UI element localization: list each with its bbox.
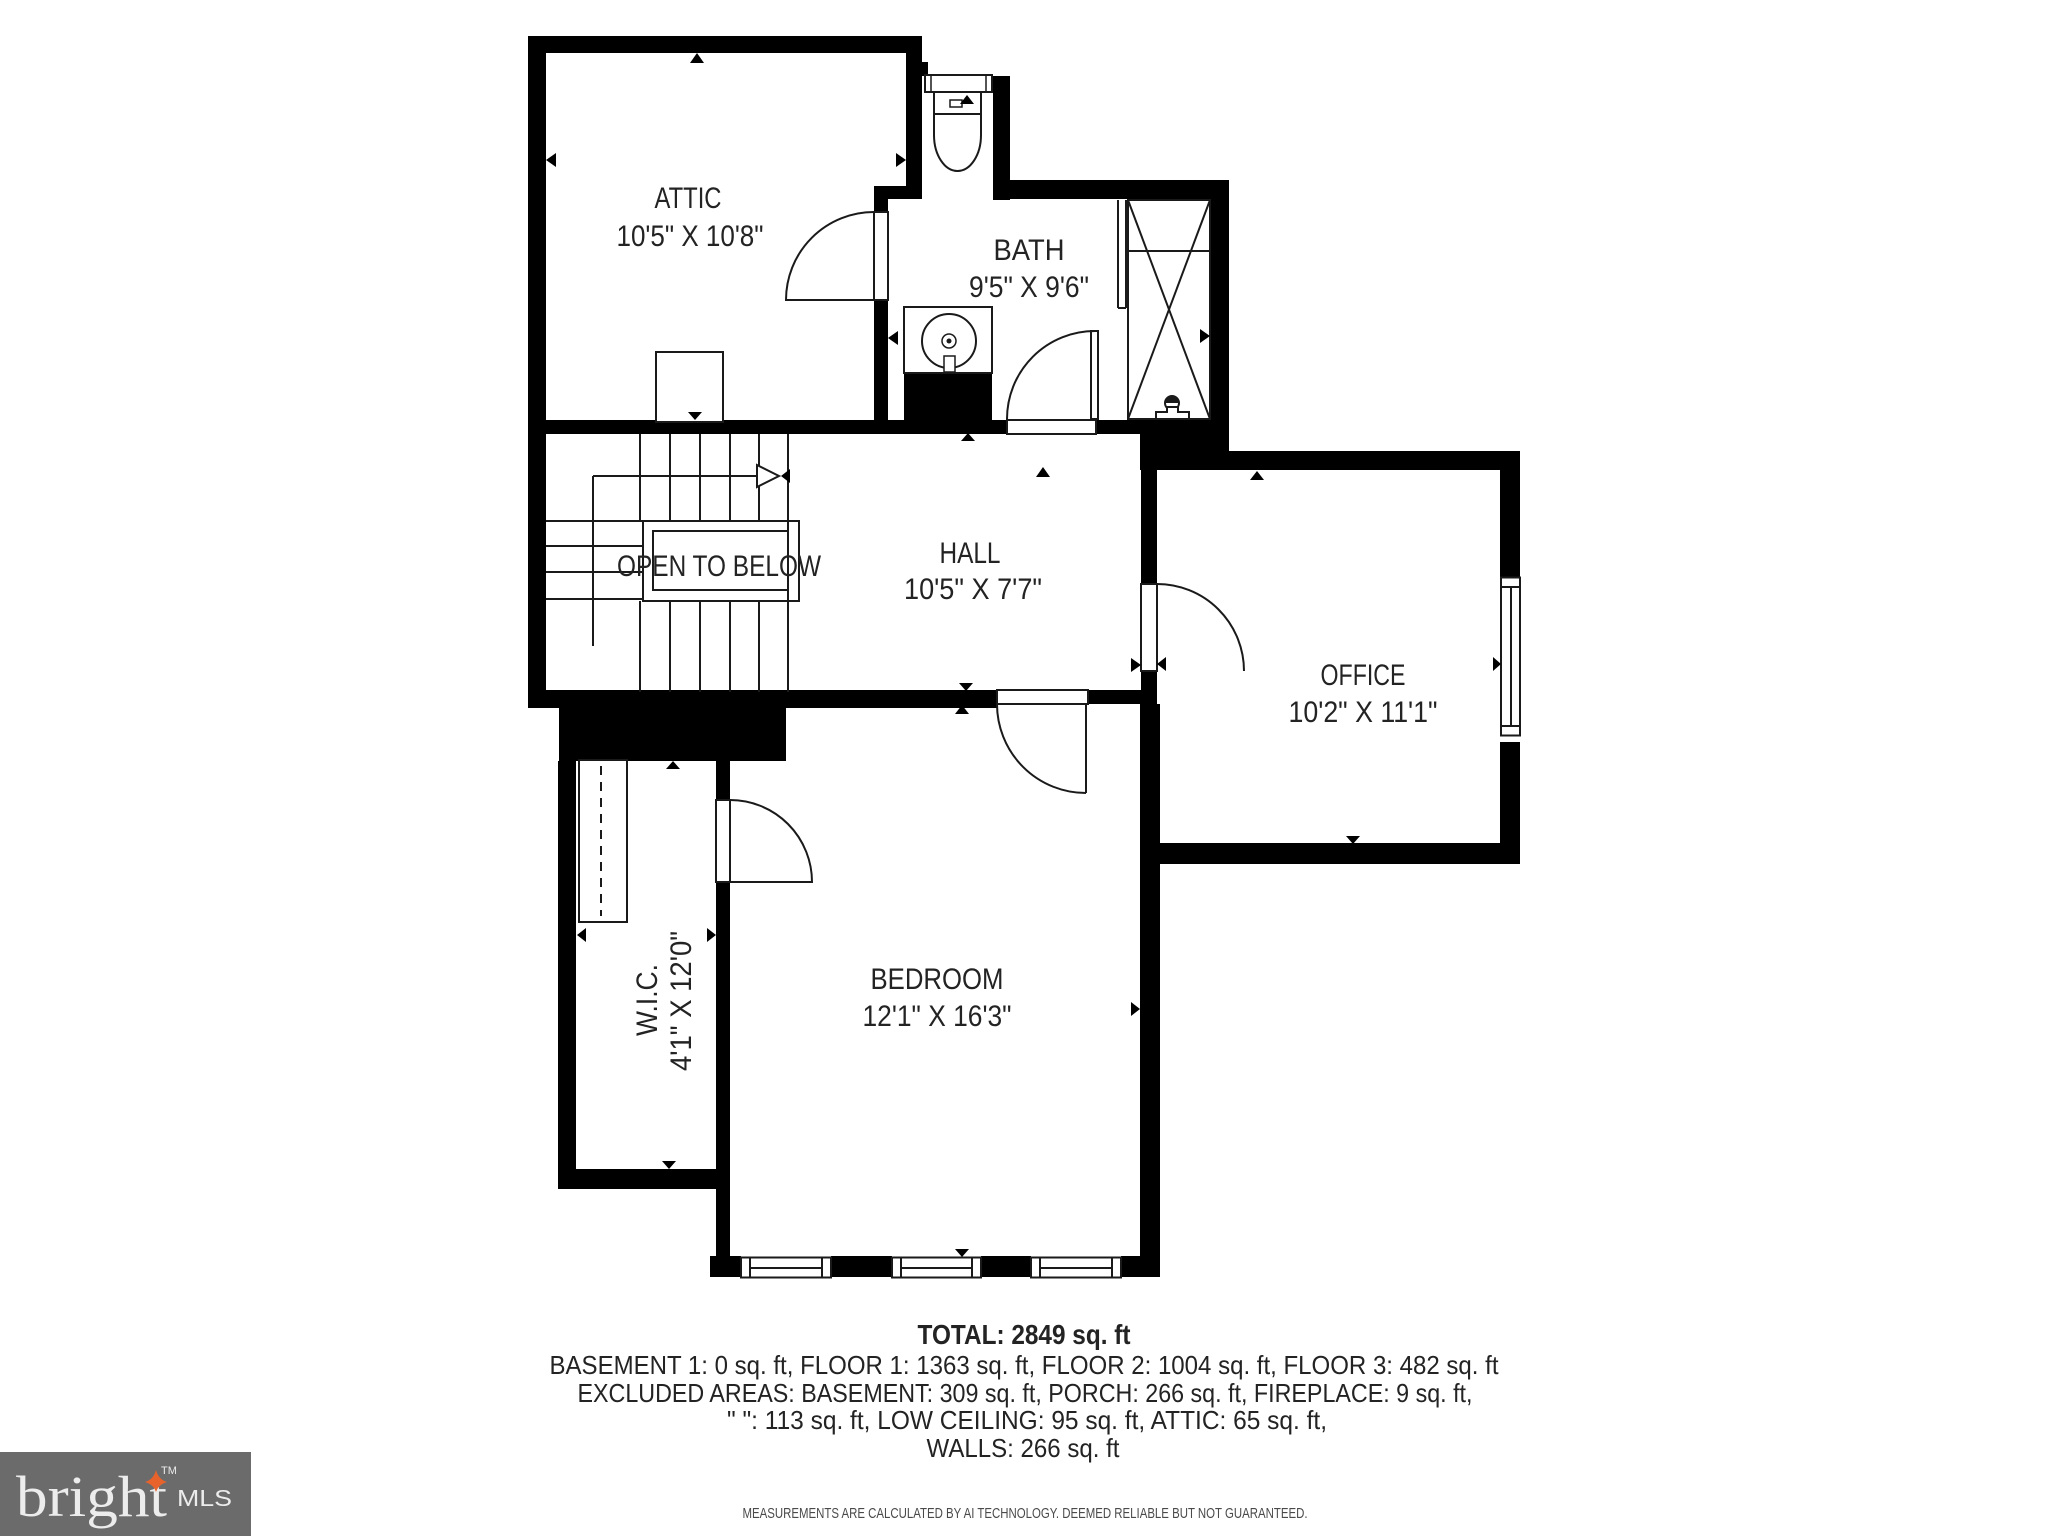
svg-text:MEASUREMENTS ARE CALCULATED BY: MEASUREMENTS ARE CALCULATED BY AI TECHNO… xyxy=(743,1505,1308,1522)
svg-text:" ": 113 sq. ft, LOW CEILING:: " ": 113 sq. ft, LOW CEILING: 95 sq. ft,… xyxy=(727,1405,1327,1435)
svg-text:BEDROOM: BEDROOM xyxy=(871,963,1004,996)
svg-text:OPEN TO BELOW: OPEN TO BELOW xyxy=(617,550,821,583)
svg-text:9'5" X 9'6": 9'5" X 9'6" xyxy=(969,271,1089,304)
svg-text:WALLS: 266 sq. ft: WALLS: 266 sq. ft xyxy=(927,1433,1121,1463)
svg-text:HALL: HALL xyxy=(940,537,1001,570)
svg-text:10'5" X 10'8": 10'5" X 10'8" xyxy=(617,220,764,253)
svg-text:MLS: MLS xyxy=(177,1485,232,1511)
svg-text:BASEMENT 1: 0 sq. ft, FLOOR 1:: BASEMENT 1: 0 sq. ft, FLOOR 1: 1363 sq. … xyxy=(550,1350,1500,1380)
svg-text:TM: TM xyxy=(161,1465,177,1477)
svg-text:10'5" X 7'7": 10'5" X 7'7" xyxy=(904,573,1042,606)
svg-text:OFFICE: OFFICE xyxy=(1321,659,1406,692)
svg-text:ATTIC: ATTIC xyxy=(655,182,722,215)
svg-text:12'1" X 16'3": 12'1" X 16'3" xyxy=(863,1000,1012,1033)
svg-text:10'2" X 11'1": 10'2" X 11'1" xyxy=(1289,696,1438,729)
svg-text:EXCLUDED AREAS: BASEMENT: 309: EXCLUDED AREAS: BASEMENT: 309 sq. ft, PO… xyxy=(578,1378,1473,1408)
svg-text:W.I.C.: W.I.C. xyxy=(631,964,664,1036)
svg-text:bright: bright xyxy=(16,1464,167,1529)
svg-text:4'1" X 12'0": 4'1" X 12'0" xyxy=(665,931,698,1071)
svg-text:TOTAL: 2849 sq. ft: TOTAL: 2849 sq. ft xyxy=(918,1319,1131,1350)
svg-text:BATH: BATH xyxy=(994,234,1065,267)
